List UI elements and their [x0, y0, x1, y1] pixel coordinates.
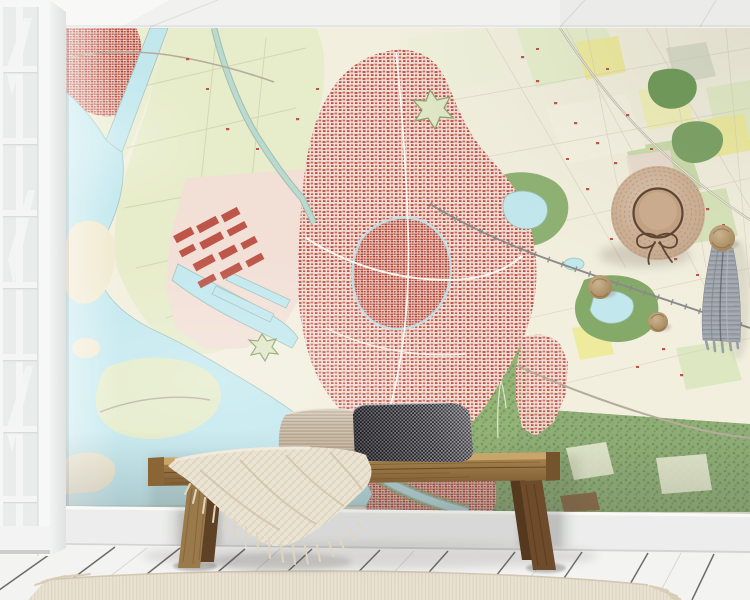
window-jamb [50, 0, 66, 556]
check-pillow-dark [353, 403, 473, 462]
ceiling-shade [560, 0, 750, 27]
window-bottom-rail [0, 526, 50, 552]
ceiling-cornice-shadow [50, 25, 750, 28]
window-sill-shadow [0, 550, 50, 554]
bench-seat-end-left [148, 457, 164, 486]
blanket-floor-shadow [208, 553, 352, 571]
stile-shadow-line [37, 0, 39, 556]
knob-shading [648, 312, 668, 332]
mockup-photo [0, 0, 750, 600]
room-scene [0, 0, 750, 600]
wall-corner-shadow [66, 28, 69, 508]
ceiling [0, 0, 750, 28]
window-top-rail [0, 0, 50, 7]
window-right-stile [37, 0, 50, 556]
corner-vignette [400, 28, 750, 288]
bench-seat-end-right [546, 452, 560, 481]
paneled-window [0, 0, 66, 556]
hat-crown-top [639, 192, 677, 230]
